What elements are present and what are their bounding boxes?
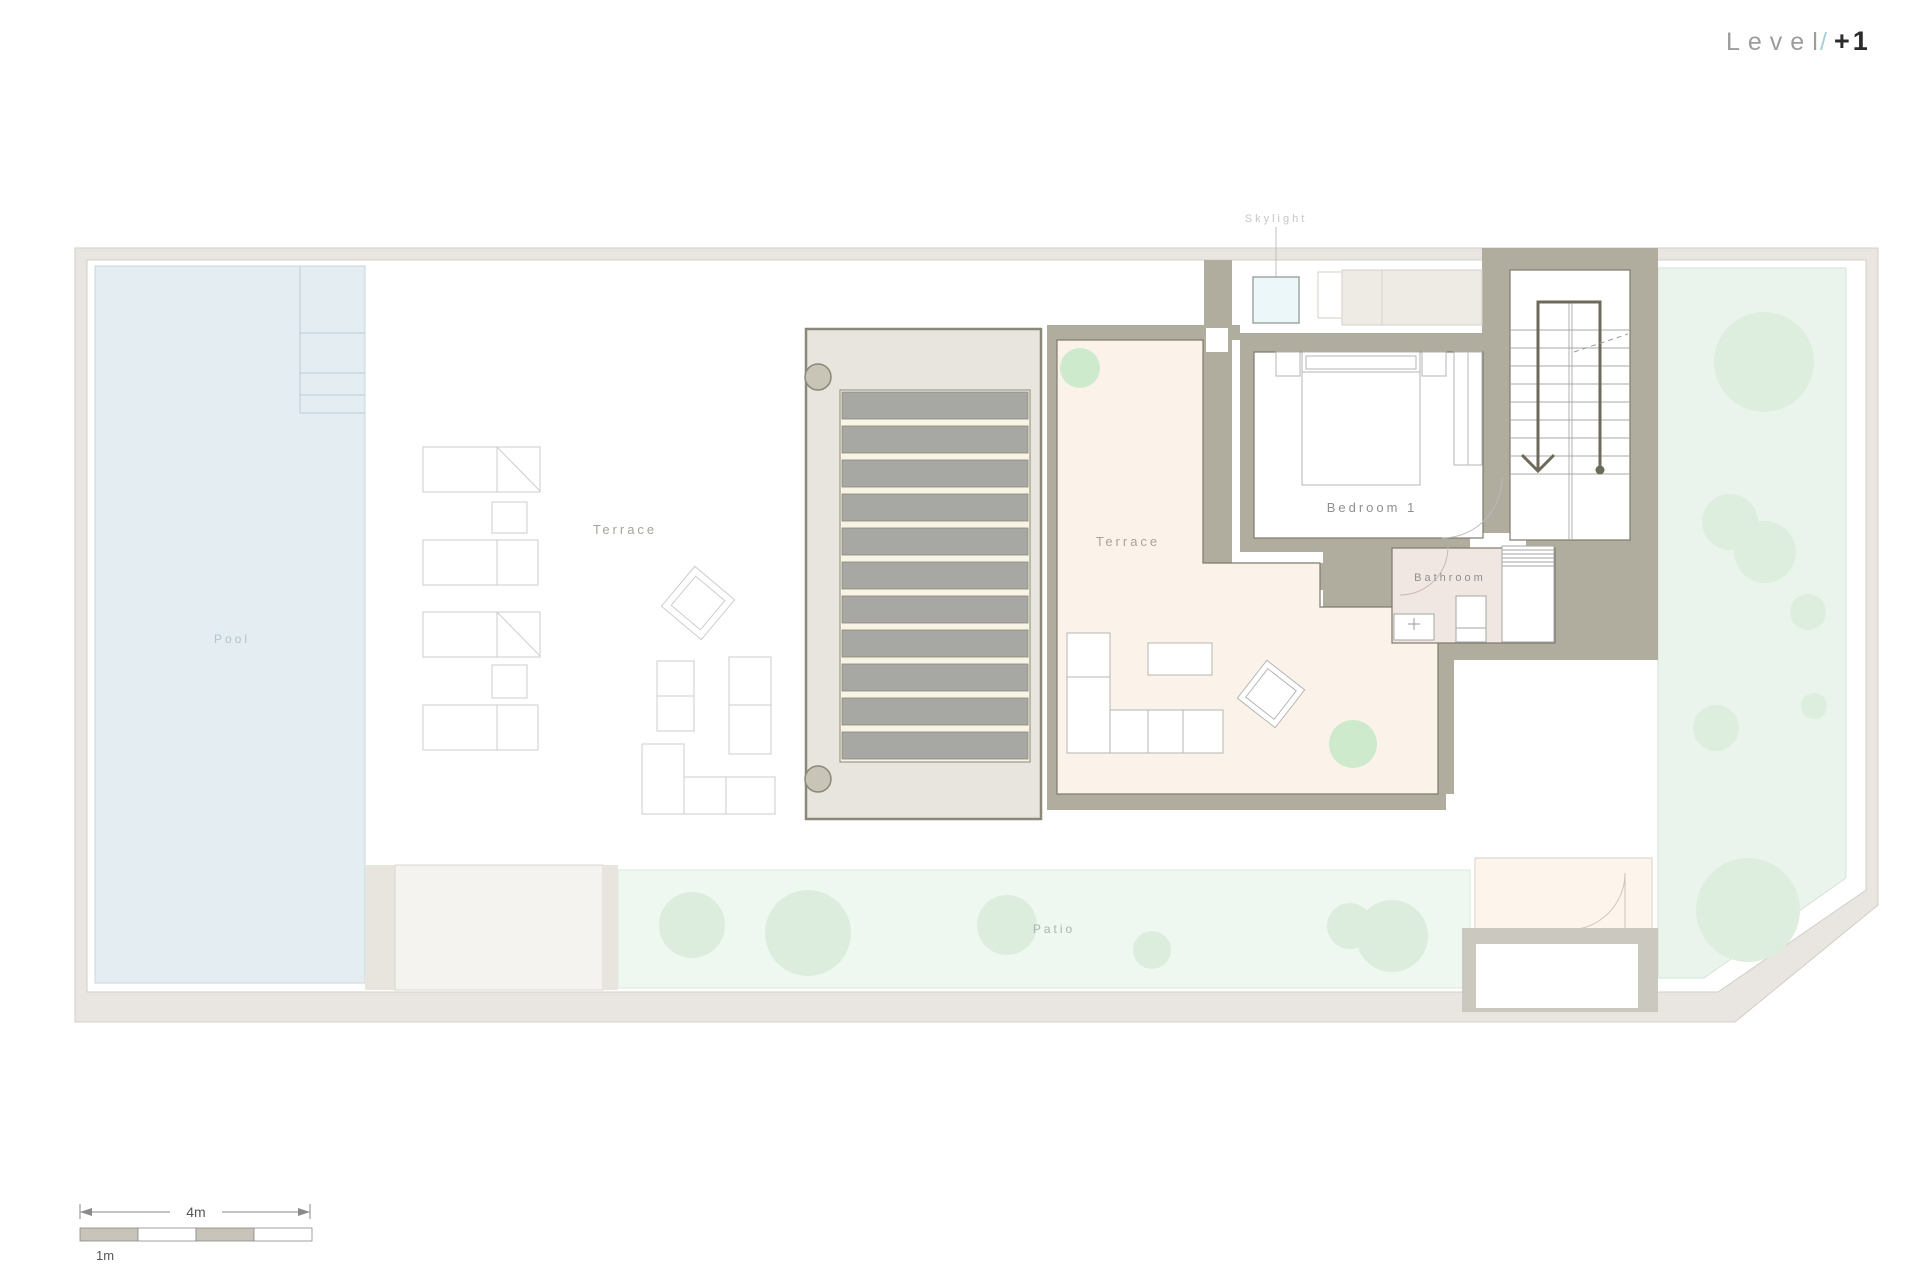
side-table-2 [492,665,527,698]
sun-lounger-4 [423,705,538,750]
roof-planter [1342,270,1482,325]
garden-tree-1 [1714,312,1814,412]
side-table-1 [492,502,527,533]
level-title-word: Level [1726,28,1826,56]
coffee-table [1148,643,1212,675]
stairwell-floor [1510,270,1630,540]
bed [1302,352,1420,485]
pool: Pool [95,266,365,983]
bedroom: Bedroom 1 [1254,352,1502,538]
entry-block-interior [1476,944,1638,1008]
stairwell [1510,270,1630,540]
pergola-slats [842,392,1028,759]
nightstand-left [1276,352,1300,376]
shower [1502,546,1554,642]
sun-lounger-3 [423,612,540,657]
pergola-post-top [805,364,831,390]
pergola-post-bottom [805,766,831,792]
garden-tree-4 [1790,594,1826,630]
garden-tree-6 [1801,693,1827,719]
garden-tree-5 [1693,705,1739,751]
patio-tree-3 [977,895,1037,955]
bedroom-label: Bedroom 1 [1327,500,1418,515]
plant-1 [1060,348,1100,388]
patio-label: Patio [1033,922,1075,936]
patio-tree-4 [1133,931,1171,969]
stair-direction-dot [1596,466,1605,475]
scale-4m-label: 4m [186,1204,205,1220]
patio-tree-2 [765,890,851,976]
patio-tree-1 [659,892,725,958]
floor-plan-drawing: Patio Pool [0,0,1920,1280]
entry-room-group [1462,858,1658,1012]
wardrobe [1454,352,1482,465]
pergola [805,329,1041,819]
level-title-slash: / [1820,28,1827,56]
outdoor-terrace-label: Terrace [593,522,657,537]
nightstand-right [1422,352,1446,376]
patio-tree-6 [1356,900,1428,972]
side-steps-area [365,865,618,990]
garden [1658,268,1846,978]
entry-door-gap [1206,328,1228,352]
sun-lounger-2 [423,540,538,585]
plant-2 [1329,720,1377,768]
pool-area [95,266,365,983]
sink [1394,614,1434,640]
level-title-number: +1 [1834,26,1871,56]
level-title: Level / +1 [1726,26,1871,56]
garden-tree-3 [1734,521,1796,583]
pool-label: Pool [214,632,250,646]
floor-plan-page: Patio Pool [0,0,1920,1280]
scale-bar: 4m 1m [80,1204,312,1263]
skylight [1253,277,1299,323]
bathroom-label: Bathroom [1414,572,1486,584]
sun-lounger-1 [423,447,540,492]
indoor-terrace-label: Terrace [1096,534,1160,549]
skylight-label: Skylight [1245,213,1308,225]
scale-segments [80,1228,312,1241]
toilet [1456,596,1486,642]
patio: Patio [618,870,1470,988]
roof-niche [1318,272,1342,318]
scale-1m-label: 1m [96,1248,114,1263]
garden-tree-7 [1696,858,1800,962]
bathroom: Bathroom [1392,546,1555,643]
